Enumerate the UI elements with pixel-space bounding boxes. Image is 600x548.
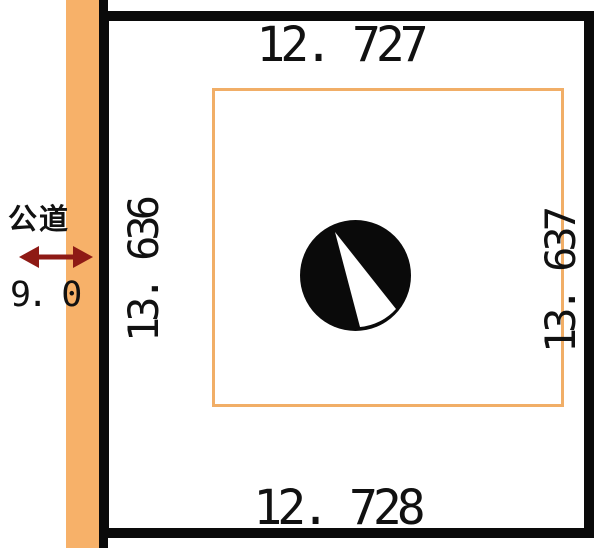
public-road-label: 公道 — [8, 205, 70, 237]
road-width-arrow-icon — [19, 245, 93, 269]
dimension-left: 13. 636 — [123, 200, 165, 342]
dimension-right: 13. 637 — [540, 211, 582, 353]
public-road-strip — [66, 0, 99, 548]
north-symbol-icon — [299, 219, 412, 332]
dimension-top: 12. 727 — [256, 21, 423, 69]
land-survey-sketch: 12. 727 12. 728 13. 636 13. 637 公道 9. 0 — [0, 0, 600, 548]
dimension-bottom: 12. 728 — [253, 484, 420, 532]
road-width-value: 9. 0 — [10, 278, 78, 313]
